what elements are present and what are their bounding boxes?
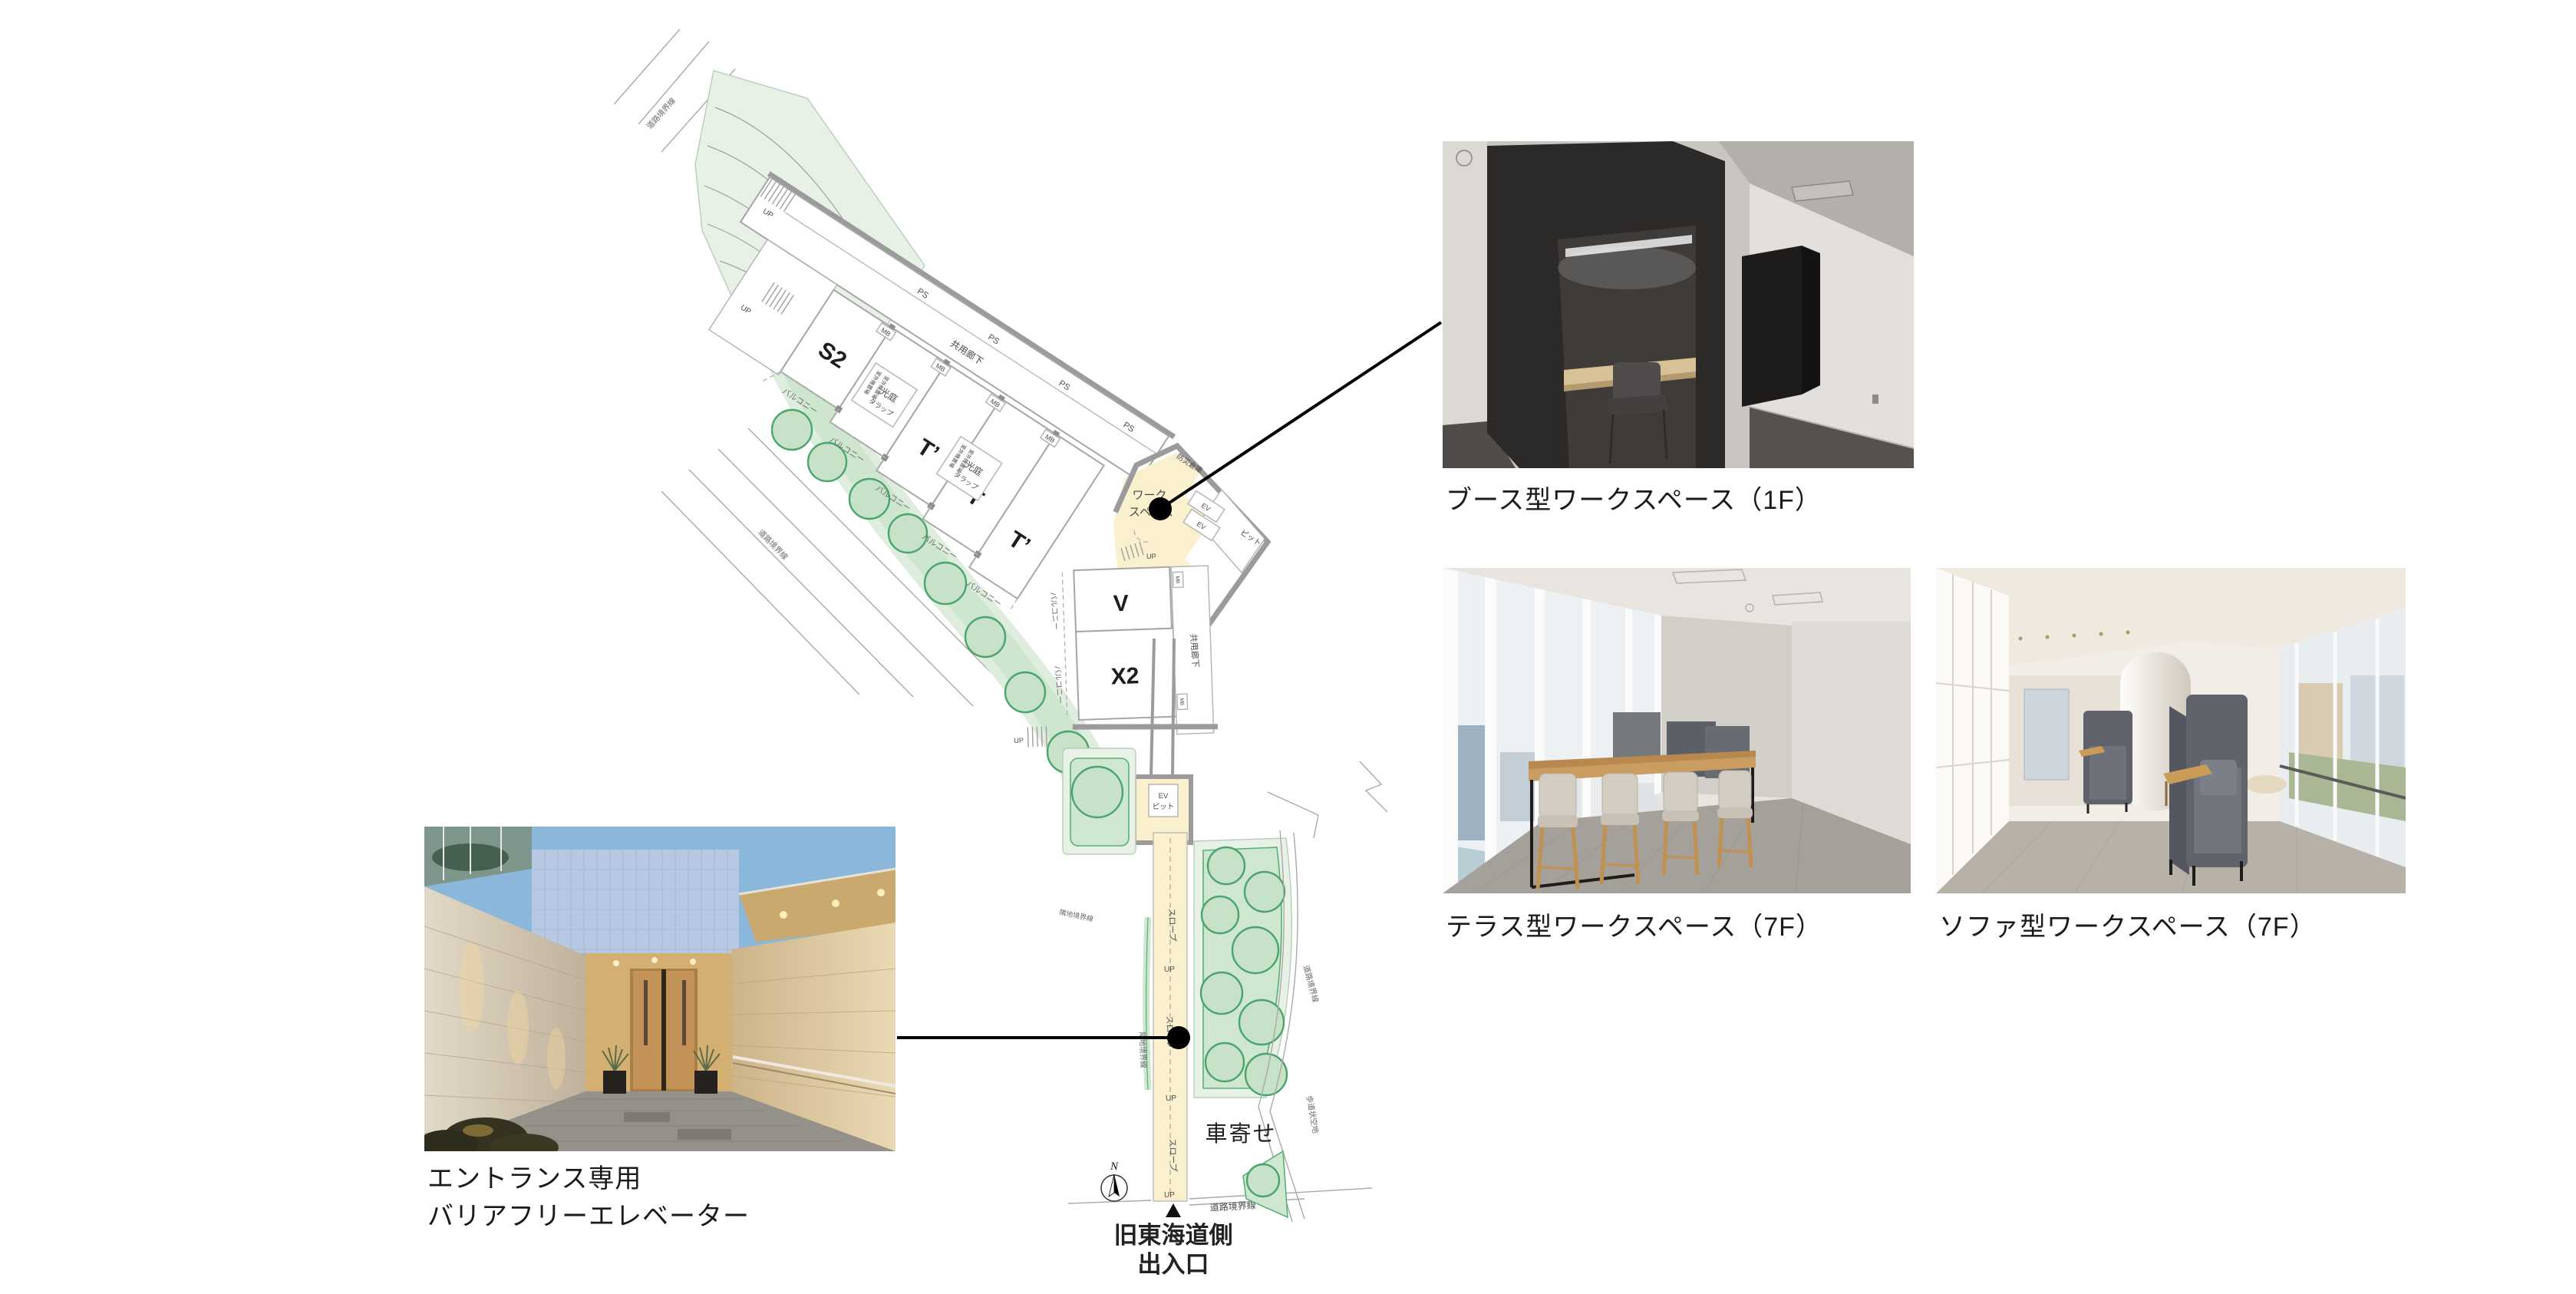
entrance-caption-line1: エントランス専用 [427, 1160, 750, 1198]
round-table [2245, 775, 2287, 794]
leader-dot-booth [1149, 497, 1172, 520]
old-tokaido-exit: 旧東海道側 出入口 [1114, 1203, 1233, 1278]
second-booth [1742, 246, 1820, 407]
road-boundary-label: 道路境界線 [1301, 964, 1321, 1004]
mb-label: MB [1179, 698, 1184, 705]
exit-label-1: 旧東海道側 [1114, 1222, 1233, 1249]
downlight [832, 900, 839, 907]
work-booth [1487, 141, 1725, 468]
booth-photo [1443, 141, 1914, 468]
up-label: UP [1146, 553, 1156, 560]
sofa-caption: ソファ型ワークスペース（7F） [1939, 909, 2317, 946]
ev-pit-label-1: EV [1159, 792, 1169, 800]
entrance-caption: エントランス専用 バリアフリーエレベーター [427, 1160, 750, 1236]
door-right [665, 971, 694, 1089]
garden-east [1194, 838, 1291, 1098]
entrance-caption-line2: バリアフリーエレベーター [427, 1198, 750, 1236]
slope-label: スロープ [1167, 1138, 1179, 1172]
terrace-photo [1443, 568, 1911, 893]
downlight [780, 911, 787, 919]
entrance-photo [424, 827, 895, 1151]
up-label: UP [1164, 1191, 1175, 1200]
up-label: UP [1166, 1094, 1176, 1103]
slope-path: スロープ UP スロープ UP スロープ UP [1146, 833, 1187, 1201]
terrace-caption: テラス型ワークスペース（7F） [1446, 909, 1822, 946]
leader-dot-entrance [1167, 1026, 1190, 1049]
north-label: N [1110, 1160, 1119, 1173]
compass: N [1101, 1160, 1127, 1201]
sidewalk-open-space-label: 歩道状空地 [1304, 1094, 1321, 1134]
garden-west [1063, 748, 1136, 854]
leader-booth [1160, 322, 1441, 509]
glass-door [2024, 689, 2069, 780]
downlight [877, 889, 885, 896]
mb-label: MB [1175, 576, 1180, 583]
ev-pit-label-2: ピット [1153, 803, 1175, 811]
road-boundary-label: 道路境界線 [645, 96, 678, 131]
up-label: UP [1164, 966, 1175, 974]
slope-label: スロープ [1166, 908, 1178, 942]
sofa-photo [1936, 568, 2406, 893]
up-label: UP [1014, 737, 1024, 744]
exit-arrow-icon [1166, 1203, 1181, 1217]
booth-caption: ブース型ワークスペース（1F） [1446, 482, 1822, 520]
sofa-booth-far [2079, 711, 2132, 814]
road-boundary-label: 道路境界線 [756, 527, 790, 562]
sofa-booth-near [2163, 695, 2248, 886]
adjacent-land-boundary-label: 隣地境界線 [1059, 908, 1094, 923]
road-boundary-label: 道路境界線 [1209, 1199, 1256, 1213]
exit-label-2: 出入口 [1138, 1251, 1209, 1278]
room-x2: X2 [1110, 663, 1140, 689]
porte-cochere-label: 車寄せ [1205, 1121, 1276, 1147]
room-v: V [1113, 591, 1129, 617]
balcony-label: バルコニー [1048, 592, 1060, 631]
